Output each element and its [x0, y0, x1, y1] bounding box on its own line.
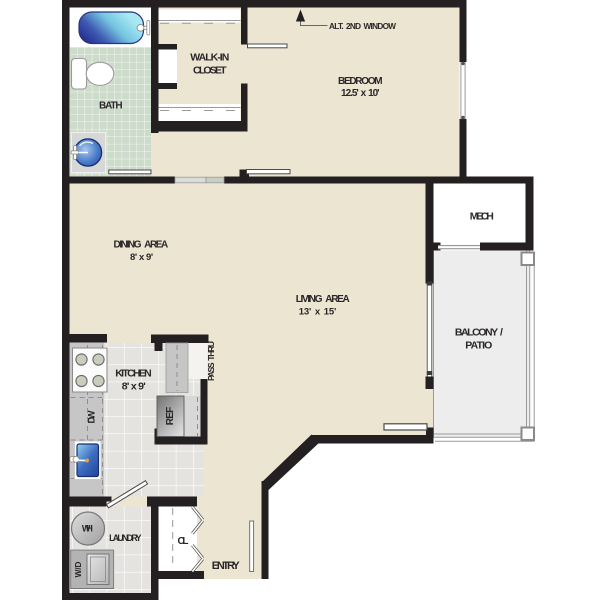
svg-text:13' x 15': 13' x 15'	[299, 307, 337, 318]
svg-text:8' x 9': 8' x 9'	[130, 252, 153, 263]
svg-text:REF: REF	[165, 407, 176, 426]
svg-text:KITCHEN: KITCHEN	[115, 368, 152, 380]
svg-text:WALK-IN: WALK-IN	[190, 52, 229, 64]
svg-text:BEDROOM: BEDROOM	[338, 76, 383, 87]
svg-text:WH: WH	[82, 523, 93, 533]
svg-text:PATIO: PATIO	[465, 340, 492, 352]
svg-text:MECH: MECH	[470, 211, 494, 223]
svg-text:PASS THRU: PASS THRU	[206, 341, 216, 381]
svg-text:8' x 9': 8' x 9'	[122, 381, 146, 393]
svg-text:LIVING AREA: LIVING AREA	[296, 294, 350, 305]
svg-text:BATH: BATH	[99, 101, 123, 112]
svg-text:CLOSET: CLOSET	[193, 65, 227, 77]
svg-text:12.5' x 10': 12.5' x 10'	[341, 88, 380, 99]
svg-text:BALCONY /: BALCONY /	[455, 327, 503, 339]
svg-text:DW: DW	[86, 410, 97, 423]
svg-text:LAUNDRY: LAUNDRY	[109, 533, 142, 543]
svg-text:DINING AREA: DINING AREA	[114, 240, 169, 251]
svg-text:W/D: W/D	[73, 562, 83, 578]
svg-text:CL: CL	[178, 536, 189, 547]
svg-text:ENTRY: ENTRY	[212, 560, 241, 572]
svg-text:ALT. 2ND WINDOW: ALT. 2ND WINDOW	[329, 22, 396, 31]
